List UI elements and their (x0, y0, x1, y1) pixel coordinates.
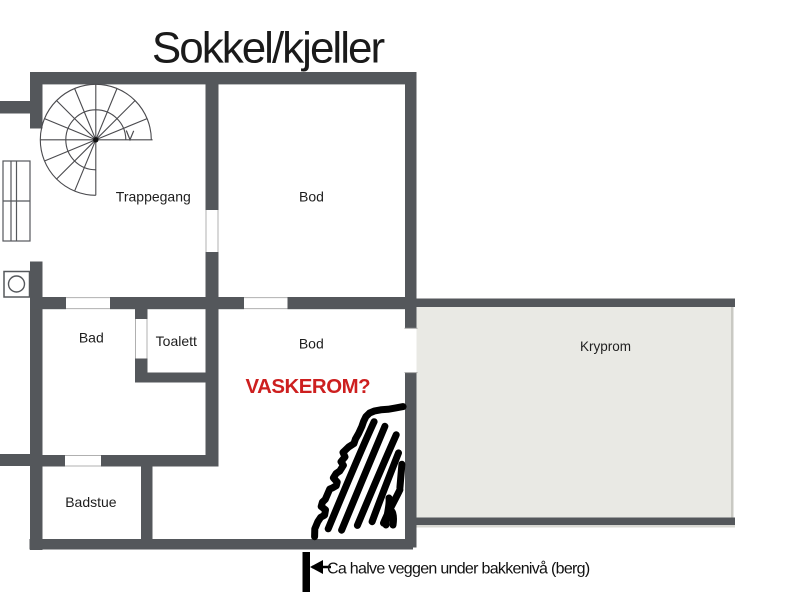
svg-text:Ca halve veggen under bakkeniv: Ca halve veggen under bakkenivå (berg) (327, 559, 590, 577)
svg-text:Bod: Bod (299, 188, 324, 204)
svg-text:Kryprom: Kryprom (580, 339, 631, 354)
svg-text:Sokkel/kjeller: Sokkel/kjeller (152, 24, 385, 73)
svg-text:Trappegang: Trappegang (116, 188, 191, 204)
svg-text:Bad: Bad (79, 330, 104, 346)
svg-text:Bod: Bod (299, 336, 324, 352)
svg-text:Badstue: Badstue (65, 494, 117, 510)
svg-text:VASKEROM?: VASKEROM? (245, 376, 370, 398)
svg-text:Toalett: Toalett (156, 333, 197, 349)
